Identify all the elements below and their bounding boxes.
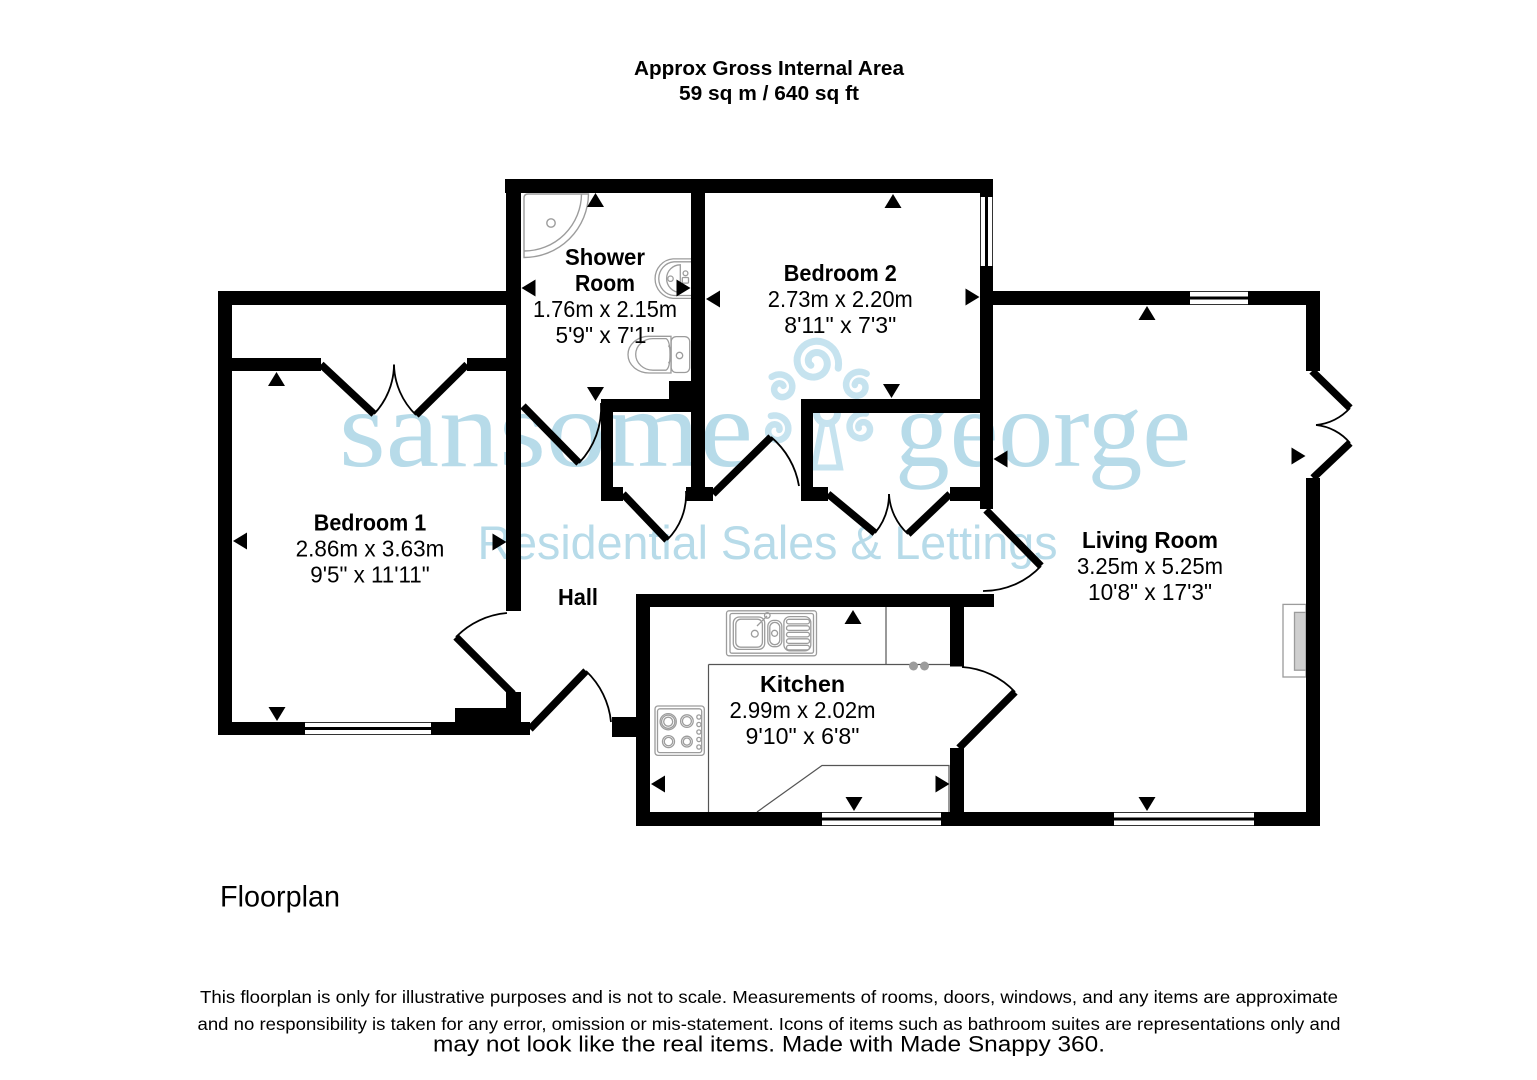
svg-text:Living Room: Living Room [1082,527,1218,553]
svg-text:59 sq m / 640 sq ft: 59 sq m / 640 sq ft [679,83,859,105]
svg-text:This floorplan is only for ill: This floorplan is only for illustrative … [200,987,1338,1007]
svg-text:Room: Room [575,270,635,296]
svg-text:Bedroom 1: Bedroom 1 [314,510,426,536]
svg-text:1.76m x 2.15m: 1.76m x 2.15m [533,296,677,322]
svg-text:Kitchen: Kitchen [760,671,845,697]
svg-text:9'5" x 11'11": 9'5" x 11'11" [310,562,429,588]
svg-text:Shower: Shower [565,244,645,270]
svg-text:3.25m x 5.25m: 3.25m x 5.25m [1077,553,1223,579]
svg-text:Floorplan: Floorplan [220,881,340,914]
svg-text:5'9" x 7'1": 5'9" x 7'1" [556,322,655,348]
svg-text:10'8" x 17'3": 10'8" x 17'3" [1088,579,1212,605]
svg-text:george: george [895,368,1191,490]
svg-text:may not look like the real ite: may not look like the real items. Made w… [433,1032,1105,1057]
svg-text:Hall: Hall [558,584,598,610]
svg-text:2.99m x 2.02m: 2.99m x 2.02m [730,697,876,723]
svg-text:9'10" x 6'8": 9'10" x 6'8" [746,723,860,749]
svg-text:Approx Gross Internal Area: Approx Gross Internal Area [634,58,905,80]
svg-text:8'11" x 7'3": 8'11" x 7'3" [784,312,896,338]
svg-text:2.86m x 3.63m: 2.86m x 3.63m [296,536,445,562]
svg-text:2.73m x 2.20m: 2.73m x 2.20m [768,286,913,312]
svg-text:Bedroom 2: Bedroom 2 [784,260,897,286]
svg-text:Residential Sales & Lettings: Residential Sales & Lettings [478,516,1058,569]
